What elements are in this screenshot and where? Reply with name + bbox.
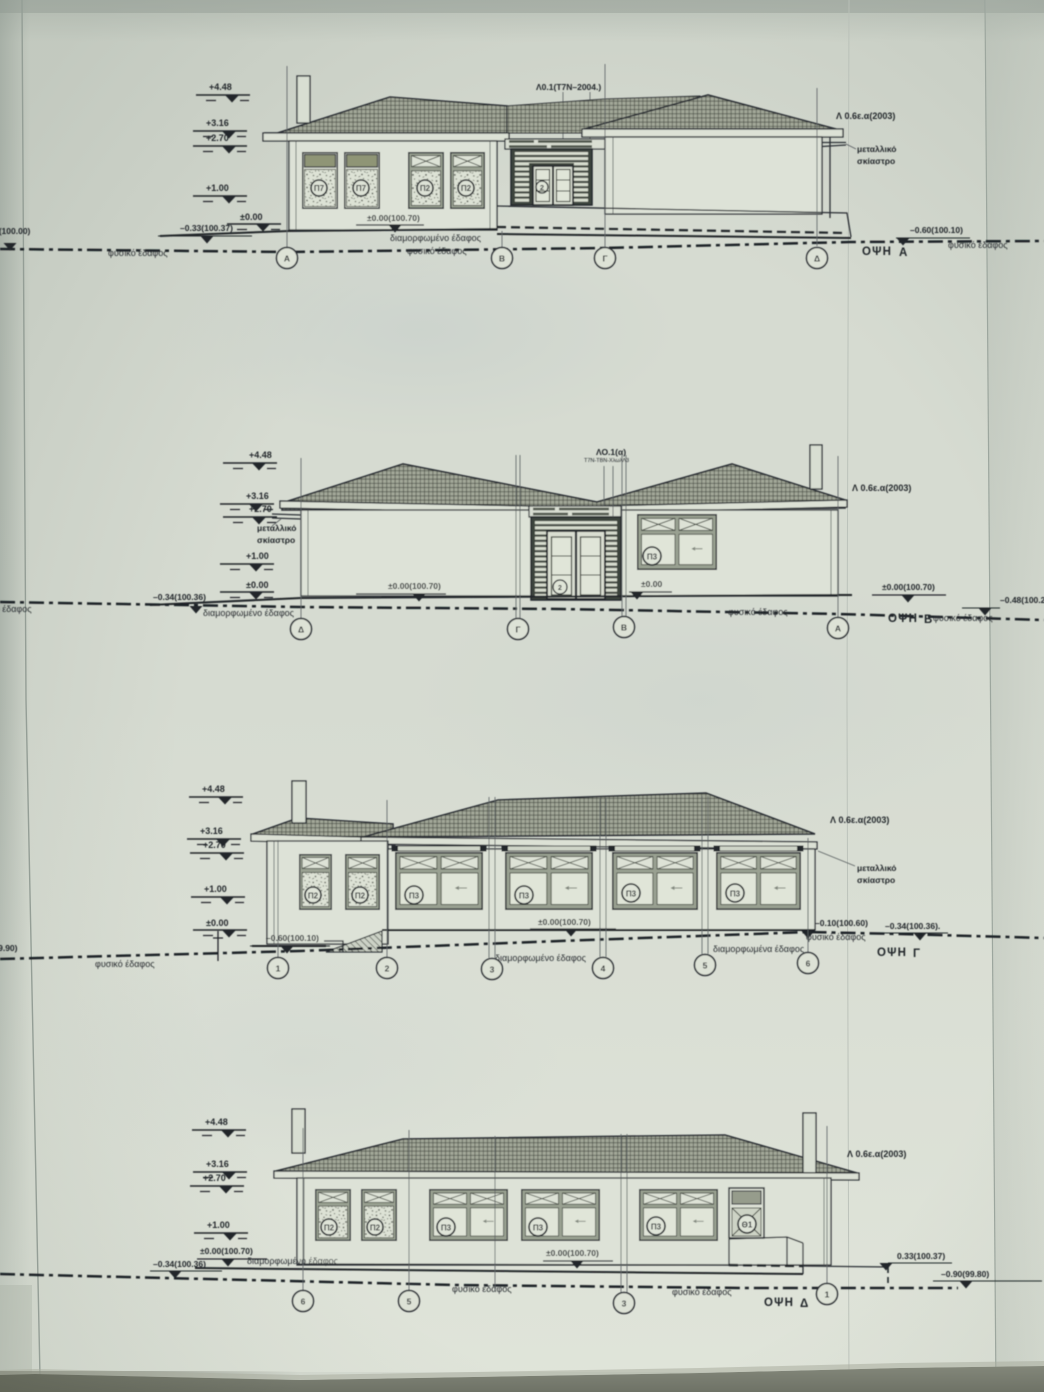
svg-text:–0.48(100.2: –0.48(100.2	[1000, 595, 1044, 605]
svg-text:2: 2	[558, 585, 562, 592]
svg-text:Π3: Π3	[651, 1223, 662, 1232]
svg-text:0.33(100.37): 0.33(100.37)	[897, 1251, 945, 1261]
svg-text:Π3: Π3	[533, 1224, 544, 1233]
svg-text:+3.16: +3.16	[200, 826, 223, 836]
svg-text:Π2: Π2	[324, 1224, 335, 1233]
svg-text:Π2: Π2	[420, 184, 431, 193]
svg-text:+2.70: +2.70	[249, 504, 272, 514]
svg-text:Λ 0.6ε.α(2003): Λ 0.6ε.α(2003)	[852, 483, 911, 493]
svg-text:Δ: Δ	[298, 625, 304, 635]
svg-text:Γ: Γ	[602, 254, 607, 264]
svg-text:φυσικό έδαφος: φυσικό έδαφος	[672, 1287, 732, 1297]
svg-text:1: 1	[825, 1290, 830, 1300]
svg-text:Β: Β	[924, 614, 934, 626]
svg-text:ΟΨΗ: ΟΨΗ	[877, 947, 907, 959]
svg-text:5: 5	[703, 961, 708, 971]
svg-text:Π3: Π3	[626, 890, 637, 899]
svg-text:φυσικό έδαφος: φυσικό έδαφος	[95, 959, 155, 969]
svg-text:φυσικό έδαφος: φυσικό έδαφος	[108, 248, 168, 258]
svg-text:3: 3	[490, 965, 495, 975]
svg-text:διαμορφωμένο έδαφος: διαμορφωμένο έδαφος	[247, 1256, 339, 1266]
svg-text:–0.90(99.80): –0.90(99.80)	[941, 1269, 989, 1279]
svg-text:–0.34(100.36): –0.34(100.36)	[153, 592, 206, 602]
svg-text:Β: Β	[499, 254, 505, 264]
svg-text:Α: Α	[899, 247, 909, 259]
svg-text:+2.70: +2.70	[206, 133, 229, 143]
svg-text:–0.34(100.36): –0.34(100.36)	[153, 1259, 206, 1269]
svg-text:φυσικό έδαφος: φυσικό έδαφος	[0, 604, 32, 614]
svg-text:ΟΨΗ: ΟΨΗ	[888, 613, 918, 625]
svg-text:±0.00(100.70): ±0.00(100.70)	[538, 917, 591, 927]
svg-text:+4.48: +4.48	[249, 450, 272, 460]
svg-text:μεταλλικό: μεταλλικό	[257, 523, 296, 533]
svg-text:6: 6	[806, 959, 811, 969]
svg-text:–0.33(100.37): –0.33(100.37)	[180, 223, 233, 233]
svg-text:Π3: Π3	[730, 890, 741, 899]
svg-text:+1.00: +1.00	[207, 1220, 230, 1230]
svg-text:0.44(99.90): 0.44(99.90)	[0, 943, 18, 953]
svg-text:2: 2	[385, 964, 390, 974]
svg-text:διαμορφωμένο έδαφος: διαμορφωμένο έδαφος	[495, 953, 587, 963]
svg-text:±0.00(100.70): ±0.00(100.70)	[546, 1248, 599, 1258]
svg-text:Π2: Π2	[461, 184, 472, 193]
svg-text:Π3: Π3	[519, 892, 530, 901]
svg-text:3: 3	[622, 1299, 627, 1309]
svg-text:ΟΨΗ: ΟΨΗ	[764, 1297, 794, 1309]
svg-text:Α: Α	[284, 254, 290, 264]
svg-text:+2.70: +2.70	[203, 1173, 226, 1183]
svg-text:διαμορφωμένα έδαφος: διαμορφωμένα έδαφος	[713, 944, 805, 954]
svg-text:+3.16: +3.16	[206, 118, 229, 128]
svg-text:Δ: Δ	[814, 254, 820, 264]
svg-text:φυσικό έδαφος: φυσικό έδαφος	[806, 932, 866, 942]
svg-text:διαμορφωμένο έδαφος: διαμορφωμένο έδαφος	[203, 608, 295, 618]
svg-text:σκίαστρο: σκίαστρο	[857, 156, 895, 166]
svg-text:Π7: Π7	[314, 184, 325, 193]
svg-text:σκίαστρο: σκίαστρο	[257, 535, 295, 545]
svg-text:Π3: Π3	[647, 553, 658, 562]
svg-text:Δ: Δ	[800, 1298, 809, 1310]
svg-text:+2.70: +2.70	[203, 840, 226, 850]
svg-text:±0.00: ±0.00	[641, 579, 662, 589]
svg-text:φυσικό έδαφος: φυσικό έδαφος	[948, 240, 1008, 250]
svg-text:–0.60(100.10): –0.60(100.10)	[266, 933, 319, 943]
svg-text:Λ 0.6ε.α(2003): Λ 0.6ε.α(2003)	[836, 111, 895, 121]
svg-text:Π7: Π7	[356, 184, 367, 193]
svg-text:1: 1	[276, 964, 281, 974]
svg-text:φυσικό έδαφος: φυσικό έδαφος	[452, 1284, 512, 1294]
svg-text:Π2: Π2	[308, 892, 319, 901]
svg-text:+4.48: +4.48	[209, 82, 232, 92]
svg-text:Λ0.1(Τ7Ν–2004.): Λ0.1(Τ7Ν–2004.)	[536, 82, 601, 92]
svg-text:4: 4	[601, 964, 606, 974]
svg-text:Γ: Γ	[515, 625, 520, 635]
svg-text:±0.00(100.70): ±0.00(100.70)	[882, 582, 935, 592]
svg-text:+1.00: +1.00	[246, 551, 269, 561]
svg-text:–0.10(100.60): –0.10(100.60)	[815, 918, 868, 928]
svg-text:Π2: Π2	[370, 1224, 381, 1233]
svg-text:+4.48: +4.48	[202, 784, 225, 794]
svg-text:±0.00: ±0.00	[246, 580, 268, 590]
svg-text:±0.00(100.70): ±0.00(100.70)	[200, 1246, 253, 1256]
svg-text:5: 5	[407, 1297, 412, 1307]
svg-text:–0.34(100.36).: –0.34(100.36).	[885, 921, 940, 931]
svg-text:±0.00: ±0.00	[240, 212, 262, 222]
svg-text:+1.00: +1.00	[204, 884, 227, 894]
svg-text:Θ1: Θ1	[742, 1221, 753, 1230]
svg-text:Γ: Γ	[913, 948, 921, 960]
svg-text:διαμορφωμένο έδαφος: διαμορφωμένο έδαφος	[390, 233, 482, 243]
svg-text:+4.48: +4.48	[205, 1117, 228, 1127]
svg-text:φυσικό έδαφος: φυσικό έδαφος	[407, 246, 467, 256]
svg-text:Λ 0.6ε.α(2003): Λ 0.6ε.α(2003)	[830, 815, 889, 825]
svg-text:Α: Α	[835, 624, 841, 634]
svg-text:σκίαστρο: σκίαστρο	[857, 875, 895, 885]
svg-text:±0.00(100.70): ±0.00(100.70)	[367, 213, 420, 223]
svg-text:Π2: Π2	[355, 892, 366, 901]
svg-text:2: 2	[540, 183, 544, 192]
svg-text:–0.60(100.10): –0.60(100.10)	[910, 225, 963, 235]
svg-text:±0.00: ±0.00	[206, 918, 228, 928]
svg-text:μεταλλικό: μεταλλικό	[857, 863, 896, 873]
svg-text:6: 6	[301, 1297, 306, 1307]
svg-text:φυσικό έδαφος: φυσικό έδαφος	[728, 607, 788, 617]
svg-text:±0.00(100.70): ±0.00(100.70)	[388, 581, 441, 591]
svg-text:Λ 0.6ε.α(2003): Λ 0.6ε.α(2003)	[847, 1149, 906, 1159]
svg-text:Π3: Π3	[409, 892, 420, 901]
svg-text:+3.16: +3.16	[206, 1159, 229, 1169]
svg-text:ΟΨΗ: ΟΨΗ	[862, 246, 892, 258]
svg-text:Β: Β	[621, 623, 627, 633]
svg-text:0(100.00): 0(100.00)	[0, 226, 31, 236]
svg-text:μεταλλικό: μεταλλικό	[857, 144, 896, 154]
svg-text:+1.00: +1.00	[206, 183, 229, 193]
svg-text:+3.16: +3.16	[246, 491, 269, 501]
svg-text:Π3: Π3	[441, 1224, 452, 1233]
